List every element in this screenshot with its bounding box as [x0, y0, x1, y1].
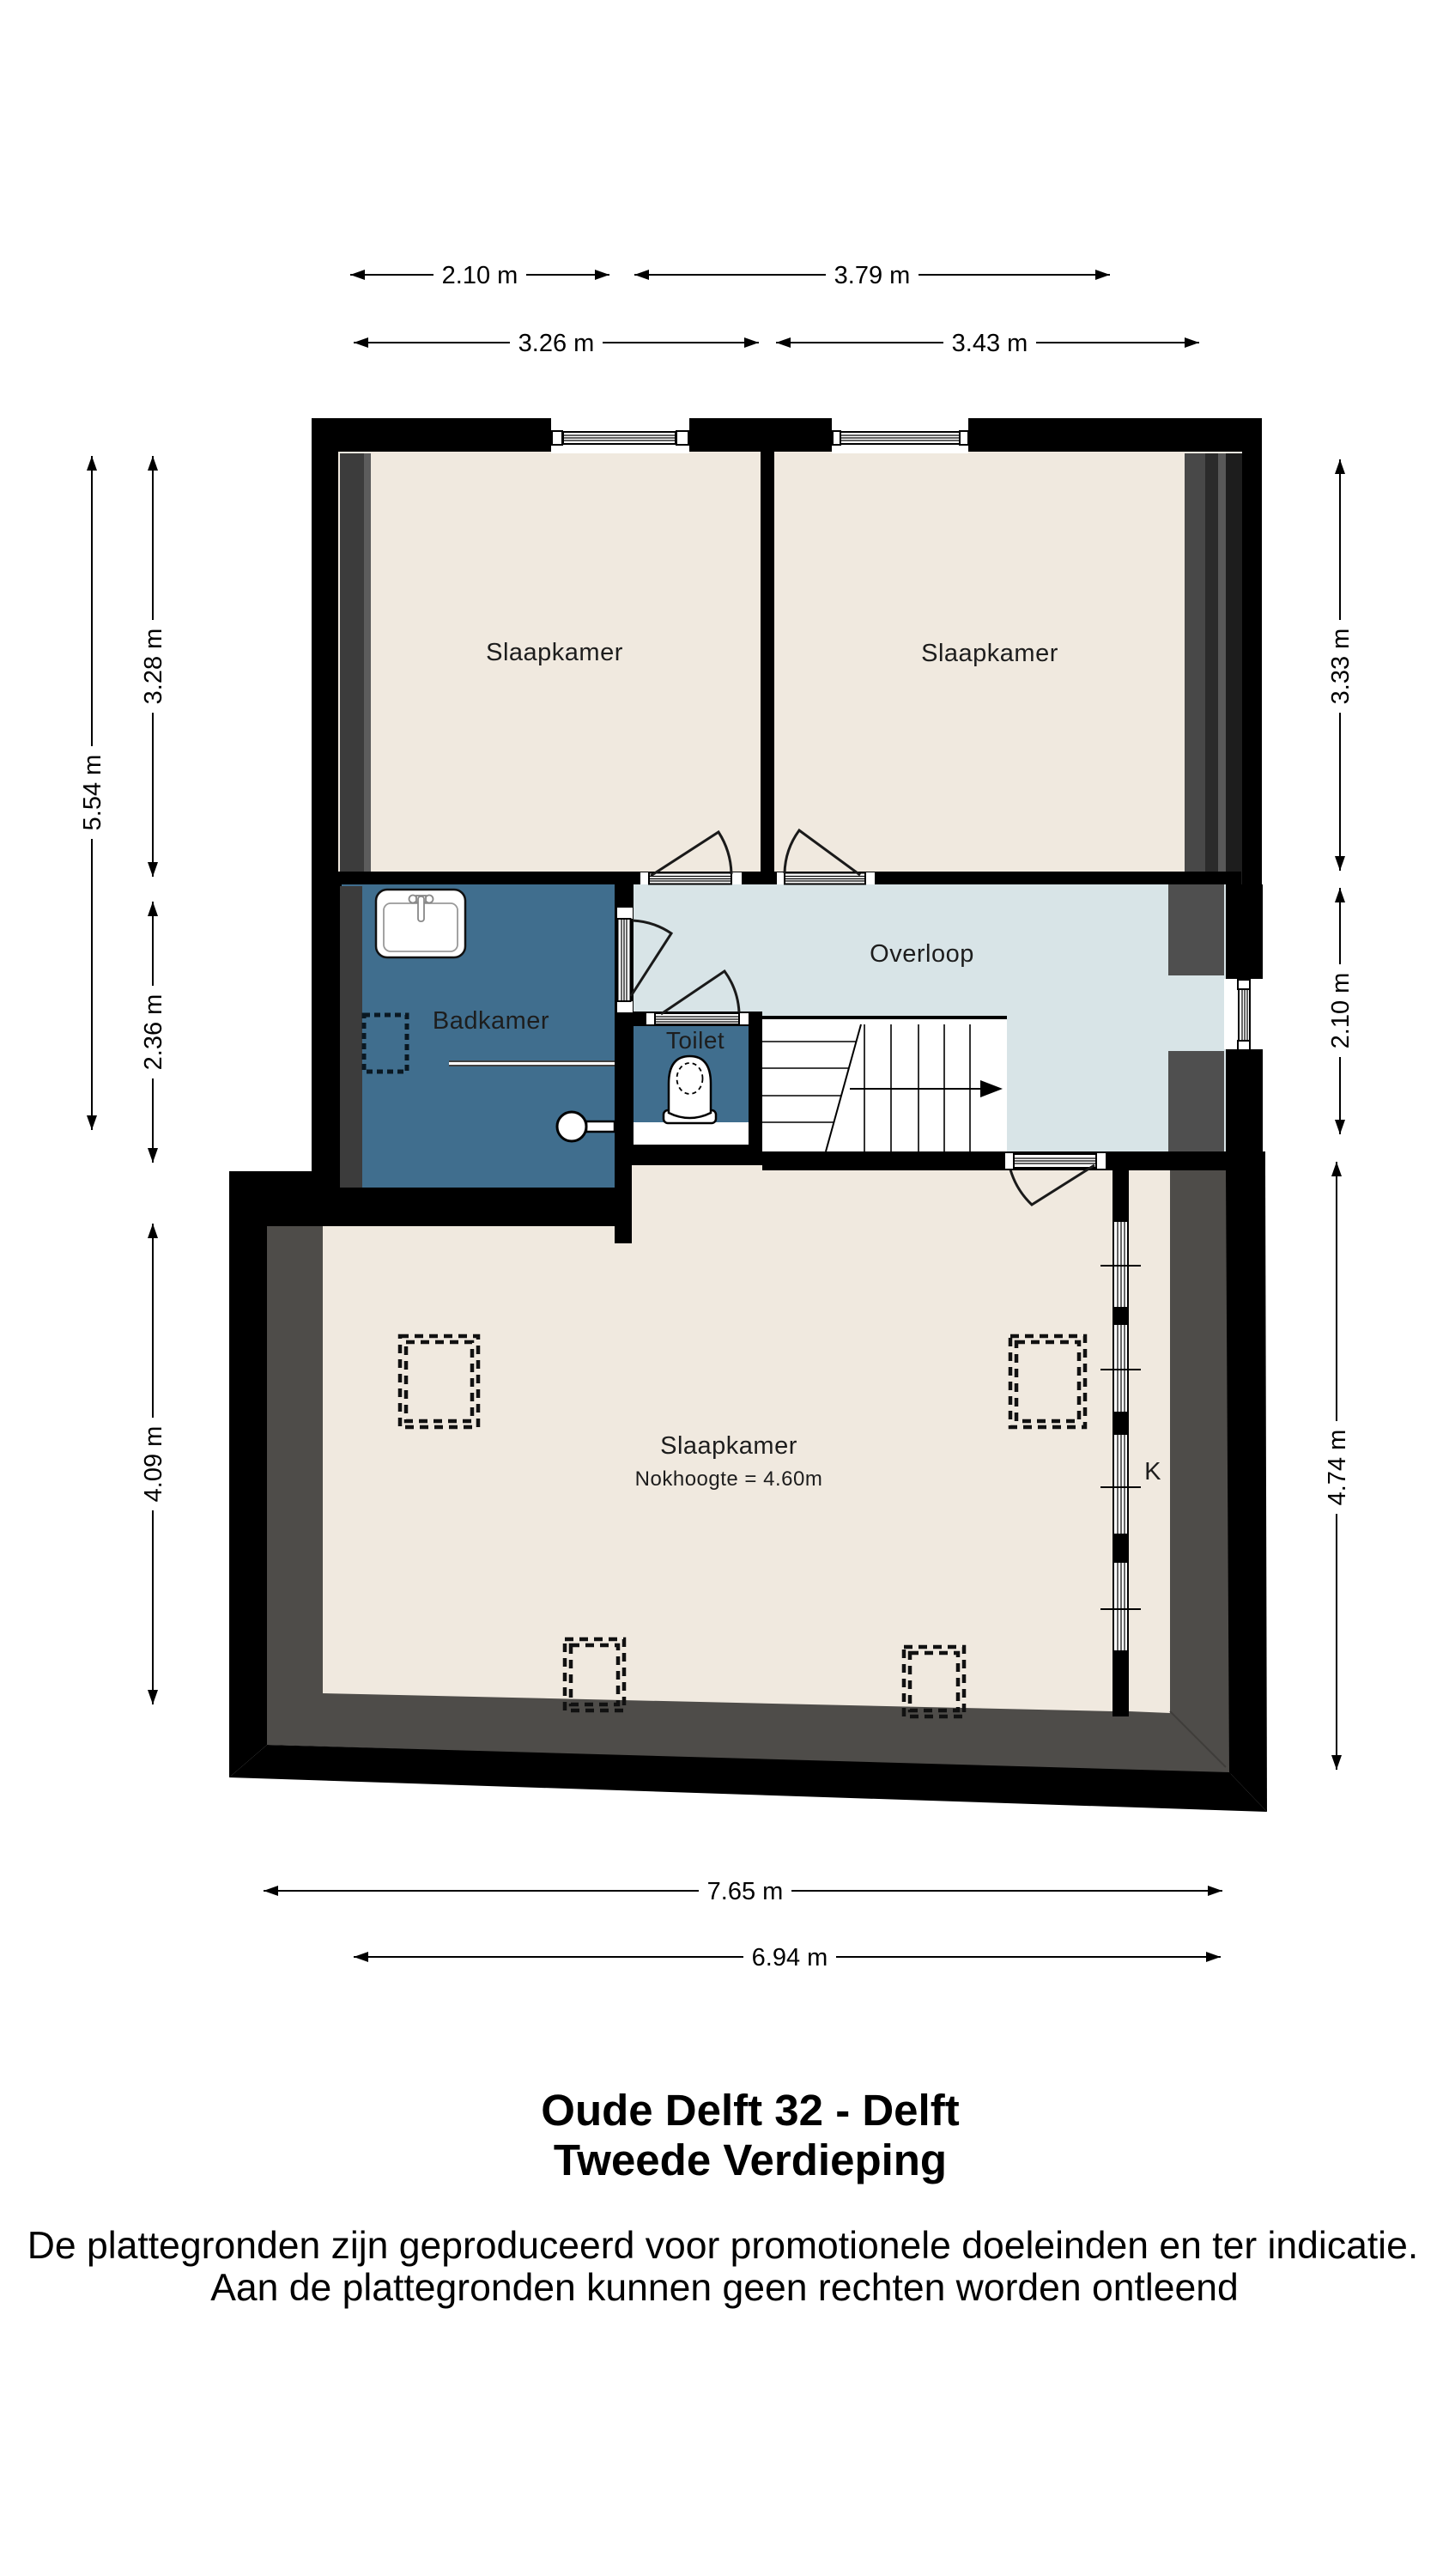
- svg-text:Tweede Verdieping: Tweede Verdieping: [554, 2136, 947, 2184]
- svg-text:Aan de plattegronden kunnen ge: Aan de plattegronden kunnen geen rechten…: [210, 2267, 1239, 2309]
- svg-text:Oude Delft 32 - Delft: Oude Delft 32 - Delft: [541, 2086, 959, 2135]
- svg-text:2.10 m: 2.10 m: [1327, 973, 1355, 1049]
- svg-text:4.74 m: 4.74 m: [1324, 1430, 1351, 1506]
- svg-text:Overloop: Overloop: [870, 940, 974, 968]
- svg-text:Slaapkamer: Slaapkamer: [921, 640, 1058, 667]
- svg-text:7.65 m: 7.65 m: [707, 1878, 784, 1905]
- svg-text:3.43 m: 3.43 m: [952, 330, 1028, 357]
- svg-text:2.10 m: 2.10 m: [442, 262, 518, 289]
- svg-text:De plattegronden zijn geproduc: De plattegronden zijn geproduceerd voor …: [27, 2225, 1418, 2267]
- svg-text:6.94 m: 6.94 m: [752, 1944, 828, 1971]
- svg-text:3.79 m: 3.79 m: [834, 262, 911, 289]
- svg-text:Badkamer: Badkamer: [433, 1007, 549, 1035]
- svg-text:Toilet: Toilet: [666, 1027, 724, 1054]
- svg-text:Nokhoogte = 4.60m: Nokhoogte = 4.60m: [635, 1467, 823, 1491]
- svg-text:3.26 m: 3.26 m: [518, 330, 595, 357]
- svg-text:Slaapkamer: Slaapkamer: [660, 1432, 797, 1460]
- svg-text:3.28 m: 3.28 m: [140, 629, 167, 705]
- svg-text:K: K: [1144, 1458, 1161, 1485]
- svg-text:3.33 m: 3.33 m: [1327, 629, 1355, 705]
- svg-text:2.36 m: 2.36 m: [140, 994, 167, 1071]
- svg-text:4.09 m: 4.09 m: [140, 1426, 167, 1503]
- svg-text:Slaapkamer: Slaapkamer: [486, 639, 623, 666]
- svg-text:5.54 m: 5.54 m: [79, 755, 106, 831]
